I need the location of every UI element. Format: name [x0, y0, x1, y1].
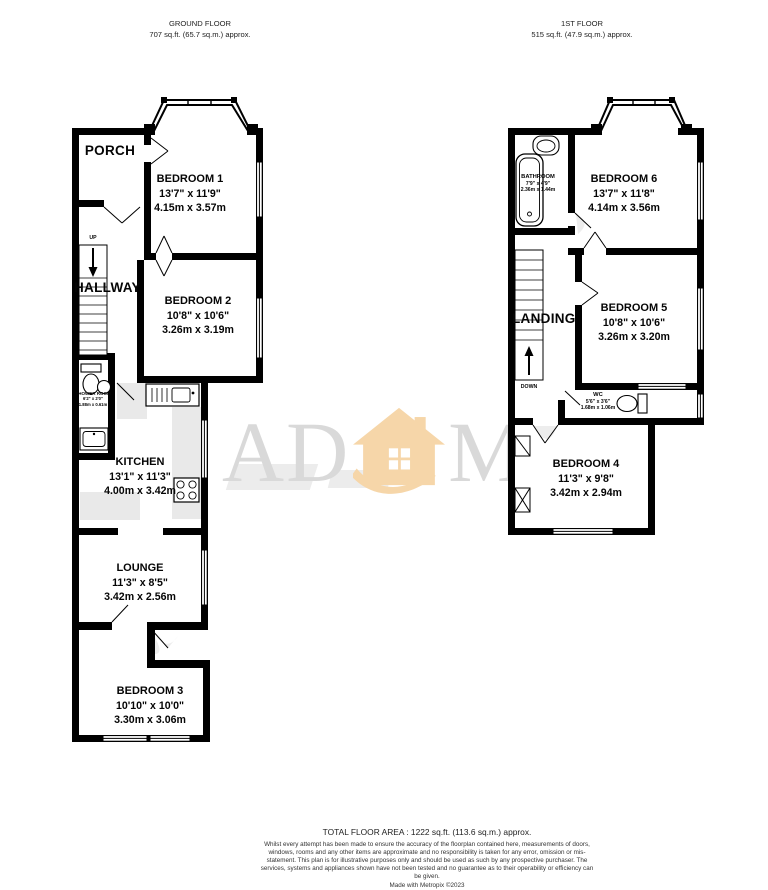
- first-floor-plan: BATHROOM 7'9" x 4'9" 2.36m x 1.44m BEDRO…: [498, 88, 718, 548]
- house-icon: [353, 406, 445, 498]
- toilet-icon: [81, 364, 101, 372]
- footer-credit: Made with Metropix ©2023: [257, 882, 597, 890]
- footer-disclaimer: Whilst every attempt has been made to en…: [257, 841, 597, 881]
- first-floor-header: 1ST FLOOR 515 sq.ft. (47.9 sq.m.) approx…: [531, 19, 632, 40]
- first-floor-area: 515 sq.ft. (47.9 sq.m.) approx.: [531, 30, 632, 41]
- ground-floor-plan: PORCH BEDROOM 1 13'7" x 11'9" 4.15m x 3.…: [62, 88, 282, 758]
- total-floor-area: TOTAL FLOOR AREA : 1222 sq.ft. (113.6 sq…: [257, 827, 597, 837]
- stairs-down-label: DOWN: [521, 384, 537, 390]
- room-label-bedroom-4: BEDROOM 4 11'3" x 9'8" 3.42m x 2.94m: [550, 457, 622, 501]
- ground-floor-header: GROUND FLOOR 707 sq.ft. (65.7 sq.m.) app…: [149, 19, 250, 40]
- ground-floor-title: GROUND FLOOR: [149, 19, 250, 30]
- room-label-bedroom-3: BEDROOM 3 10'10" x 10'0" 3.30m x 3.06m: [114, 684, 186, 728]
- room-label-wc: WC 5'6" x 3'6" 1.68m x 1.06m: [581, 392, 616, 412]
- footer: TOTAL FLOOR AREA : 1222 sq.ft. (113.6 sq…: [257, 827, 597, 890]
- ground-floor-area: 707 sq.ft. (65.7 sq.m.) approx.: [149, 30, 250, 41]
- toilet-icon: [617, 394, 647, 413]
- room-label-landing: LANDING: [512, 312, 576, 327]
- stairs-up-label: UP: [89, 235, 96, 241]
- room-label-porch: PORCH: [85, 144, 135, 159]
- room-label-lounge: LOUNGE 11'3" x 8'5" 3.42m x 2.56m: [104, 561, 176, 605]
- room-label-bedroom-6: BEDROOM 6 13'7" x 11'8" 4.14m x 3.56m: [588, 172, 660, 216]
- room-label-bathroom: BATHROOM 7'9" x 4'9" 2.36m x 1.44m: [521, 174, 556, 194]
- room-label-kitchen: KITCHEN 13'1" x 11'3" 4.00m x 3.42m: [104, 455, 176, 499]
- staircase-up: [79, 245, 107, 355]
- room-label-hallway: HALLWAY: [74, 281, 141, 296]
- room-label-shower-room: SHOWER ROOM 6'2" x 2'0" 1.88m x 0.61m: [75, 391, 111, 407]
- room-label-bedroom-2: BEDROOM 2 10'8" x 10'6" 3.26m x 3.19m: [162, 294, 234, 338]
- first-floor-title: 1ST FLOOR: [531, 19, 632, 30]
- room-label-bedroom-5: BEDROOM 5 10'8" x 10'6" 3.26m x 3.20m: [598, 301, 670, 345]
- room-label-bedroom-1: BEDROOM 1 13'7" x 11'9" 4.15m x 3.57m: [154, 172, 226, 216]
